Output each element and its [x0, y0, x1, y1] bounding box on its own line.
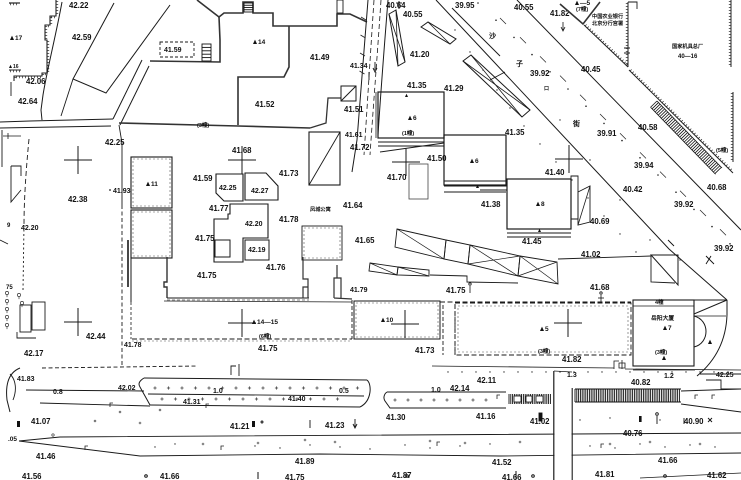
svg-text:40.76: 40.76 [623, 429, 643, 438]
svg-text:国家机具总厂: 国家机具总厂 [672, 42, 703, 50]
svg-text:41.93: 41.93 [113, 188, 131, 195]
svg-text:42.06: 42.06 [26, 77, 46, 86]
svg-text:41.07: 41.07 [31, 417, 51, 426]
svg-text:41.79: 41.79 [350, 287, 368, 294]
svg-text:42.25: 42.25 [219, 185, 237, 192]
svg-text:4幢: 4幢 [655, 298, 664, 306]
svg-text:41.82: 41.82 [562, 355, 582, 364]
svg-text:40.90: 40.90 [684, 417, 704, 426]
svg-text:41.73: 41.73 [279, 169, 299, 178]
svg-text:6: 6 [413, 115, 417, 122]
svg-text:41.78: 41.78 [124, 342, 142, 349]
svg-text:41.75: 41.75 [446, 286, 466, 295]
svg-text:6: 6 [475, 158, 479, 165]
svg-text:41.78: 41.78 [279, 215, 299, 224]
svg-text:42.14: 42.14 [450, 384, 470, 393]
svg-text:沙: 沙 [489, 32, 496, 40]
svg-text:1.3: 1.3 [567, 372, 577, 379]
svg-text:41.75: 41.75 [285, 473, 305, 480]
svg-text:17: 17 [15, 35, 23, 42]
svg-text:41.59: 41.59 [164, 47, 182, 54]
svg-text:—5: —5 [580, 0, 591, 7]
svg-text:41.77: 41.77 [209, 204, 229, 213]
svg-text:41.23: 41.23 [325, 421, 345, 430]
svg-text:41.73: 41.73 [415, 346, 435, 355]
svg-text:42.17: 42.17 [24, 349, 44, 358]
svg-text:42.27: 42.27 [251, 188, 269, 195]
svg-text:岳阳大厦: 岳阳大厦 [651, 314, 674, 322]
svg-text:42.59: 42.59 [72, 33, 92, 42]
svg-text:41.61: 41.61 [345, 132, 363, 139]
svg-text:41.52: 41.52 [255, 100, 275, 109]
svg-text:41.38: 41.38 [481, 200, 501, 209]
svg-text:42.64: 42.64 [18, 97, 38, 106]
svg-text:(3幢): (3幢) [197, 121, 209, 129]
svg-text:41.35: 41.35 [407, 81, 427, 90]
svg-text:41.75: 41.75 [258, 344, 278, 353]
svg-text:41.29: 41.29 [444, 84, 464, 93]
svg-text:39.91: 39.91 [597, 129, 617, 138]
svg-text:子: 子 [516, 60, 523, 68]
svg-text:.05: .05 [8, 436, 17, 443]
svg-text:41.16: 41.16 [476, 412, 496, 421]
svg-text:41.89: 41.89 [295, 457, 315, 466]
svg-text:40.42: 40.42 [623, 185, 643, 194]
svg-text:10: 10 [386, 317, 394, 324]
svg-text:42.25: 42.25 [105, 138, 125, 147]
svg-text:11: 11 [151, 181, 158, 188]
svg-text:14: 14 [258, 39, 266, 46]
svg-text:40.58: 40.58 [638, 123, 658, 132]
svg-text:41.52: 41.52 [492, 458, 512, 467]
svg-text:41.20: 41.20 [410, 50, 430, 59]
svg-text:41.31: 41.31 [183, 399, 201, 406]
svg-text:40.55: 40.55 [514, 3, 534, 12]
svg-text:39.94: 39.94 [634, 161, 654, 170]
svg-text:0.5: 0.5 [339, 388, 349, 395]
svg-text:42.44: 42.44 [86, 332, 106, 341]
svg-text:41.34: 41.34 [350, 63, 368, 70]
svg-text:41.40: 41.40 [545, 168, 565, 177]
svg-text:41.68: 41.68 [590, 283, 610, 292]
svg-text:8: 8 [541, 201, 545, 208]
svg-text:中国农业银行: 中国农业银行 [592, 12, 624, 20]
svg-text:5: 5 [545, 326, 549, 333]
svg-text:41.49: 41.49 [310, 53, 330, 62]
svg-text:1.2: 1.2 [664, 373, 674, 380]
svg-text:(1幢): (1幢) [402, 129, 414, 137]
svg-text:41.30: 41.30 [386, 413, 406, 422]
svg-text:40.64: 40.64 [386, 1, 406, 10]
svg-text:(5幢): (5幢) [716, 146, 728, 154]
svg-text:40.55: 40.55 [403, 10, 423, 19]
svg-text:42.25: 42.25 [716, 372, 734, 379]
svg-text:41.75: 41.75 [197, 271, 217, 280]
svg-text:42.20: 42.20 [21, 225, 39, 232]
svg-text:(7幢): (7幢) [576, 5, 588, 13]
svg-text:39.92: 39.92 [674, 200, 694, 209]
svg-text:41.66: 41.66 [502, 473, 522, 480]
svg-text:41.35: 41.35 [505, 128, 525, 137]
svg-text:41.62: 41.62 [707, 471, 727, 480]
svg-text:42.02: 42.02 [118, 385, 136, 392]
svg-text:41.50: 41.50 [427, 154, 447, 163]
svg-text:(3幢): (3幢) [655, 348, 667, 356]
svg-text:41.66: 41.66 [658, 456, 678, 465]
svg-text:40.45: 40.45 [581, 65, 601, 74]
svg-text:39.92: 39.92 [530, 69, 550, 78]
svg-text:14—15: 14—15 [257, 319, 278, 326]
svg-text:41.64: 41.64 [343, 201, 363, 210]
svg-text:41.56: 41.56 [22, 472, 42, 480]
svg-text:7: 7 [668, 325, 672, 332]
svg-text:41.46: 41.46 [36, 452, 56, 461]
svg-text:41.83: 41.83 [17, 376, 35, 383]
svg-text:40.68: 40.68 [707, 183, 727, 192]
svg-text:16: 16 [13, 64, 19, 70]
svg-text:41.59: 41.59 [193, 174, 213, 183]
svg-text:39.95: 39.95 [455, 1, 475, 10]
svg-text:75: 75 [6, 285, 13, 291]
svg-text:41.45: 41.45 [522, 237, 542, 246]
svg-text:42.22: 42.22 [69, 1, 89, 10]
svg-text:41.76: 41.76 [266, 263, 286, 272]
svg-text:41.70: 41.70 [387, 173, 407, 182]
svg-text:41.72: 41.72 [350, 143, 370, 152]
svg-text:1.0: 1.0 [213, 388, 223, 395]
svg-text:41.81: 41.81 [595, 470, 615, 479]
svg-text:42.11: 42.11 [477, 376, 497, 385]
svg-text:40.82: 40.82 [631, 378, 651, 387]
svg-text:41.65: 41.65 [355, 236, 375, 245]
svg-text:42.20: 42.20 [245, 221, 263, 228]
svg-text:0.8: 0.8 [53, 389, 63, 396]
svg-text:41.21: 41.21 [230, 422, 250, 431]
svg-text:41.75: 41.75 [195, 234, 215, 243]
svg-text:41.51: 41.51 [344, 105, 364, 114]
svg-text:口: 口 [544, 86, 549, 92]
svg-text:北京分行宫署: 北京分行宫署 [592, 19, 624, 27]
svg-text:街: 街 [572, 119, 580, 128]
svg-text:凤城公寓: 凤城公寓 [310, 205, 331, 213]
svg-text:40—16: 40—16 [678, 54, 698, 60]
svg-text:1.0: 1.0 [431, 387, 441, 394]
svg-text:40.69: 40.69 [590, 217, 610, 226]
svg-text:41.40: 41.40 [288, 396, 306, 403]
svg-text:39.92: 39.92 [714, 244, 734, 253]
svg-text:42.19: 42.19 [248, 247, 266, 254]
svg-text:41.66: 41.66 [160, 472, 180, 480]
svg-text:(3幢): (3幢) [538, 347, 550, 355]
svg-text:42.38: 42.38 [68, 195, 88, 204]
